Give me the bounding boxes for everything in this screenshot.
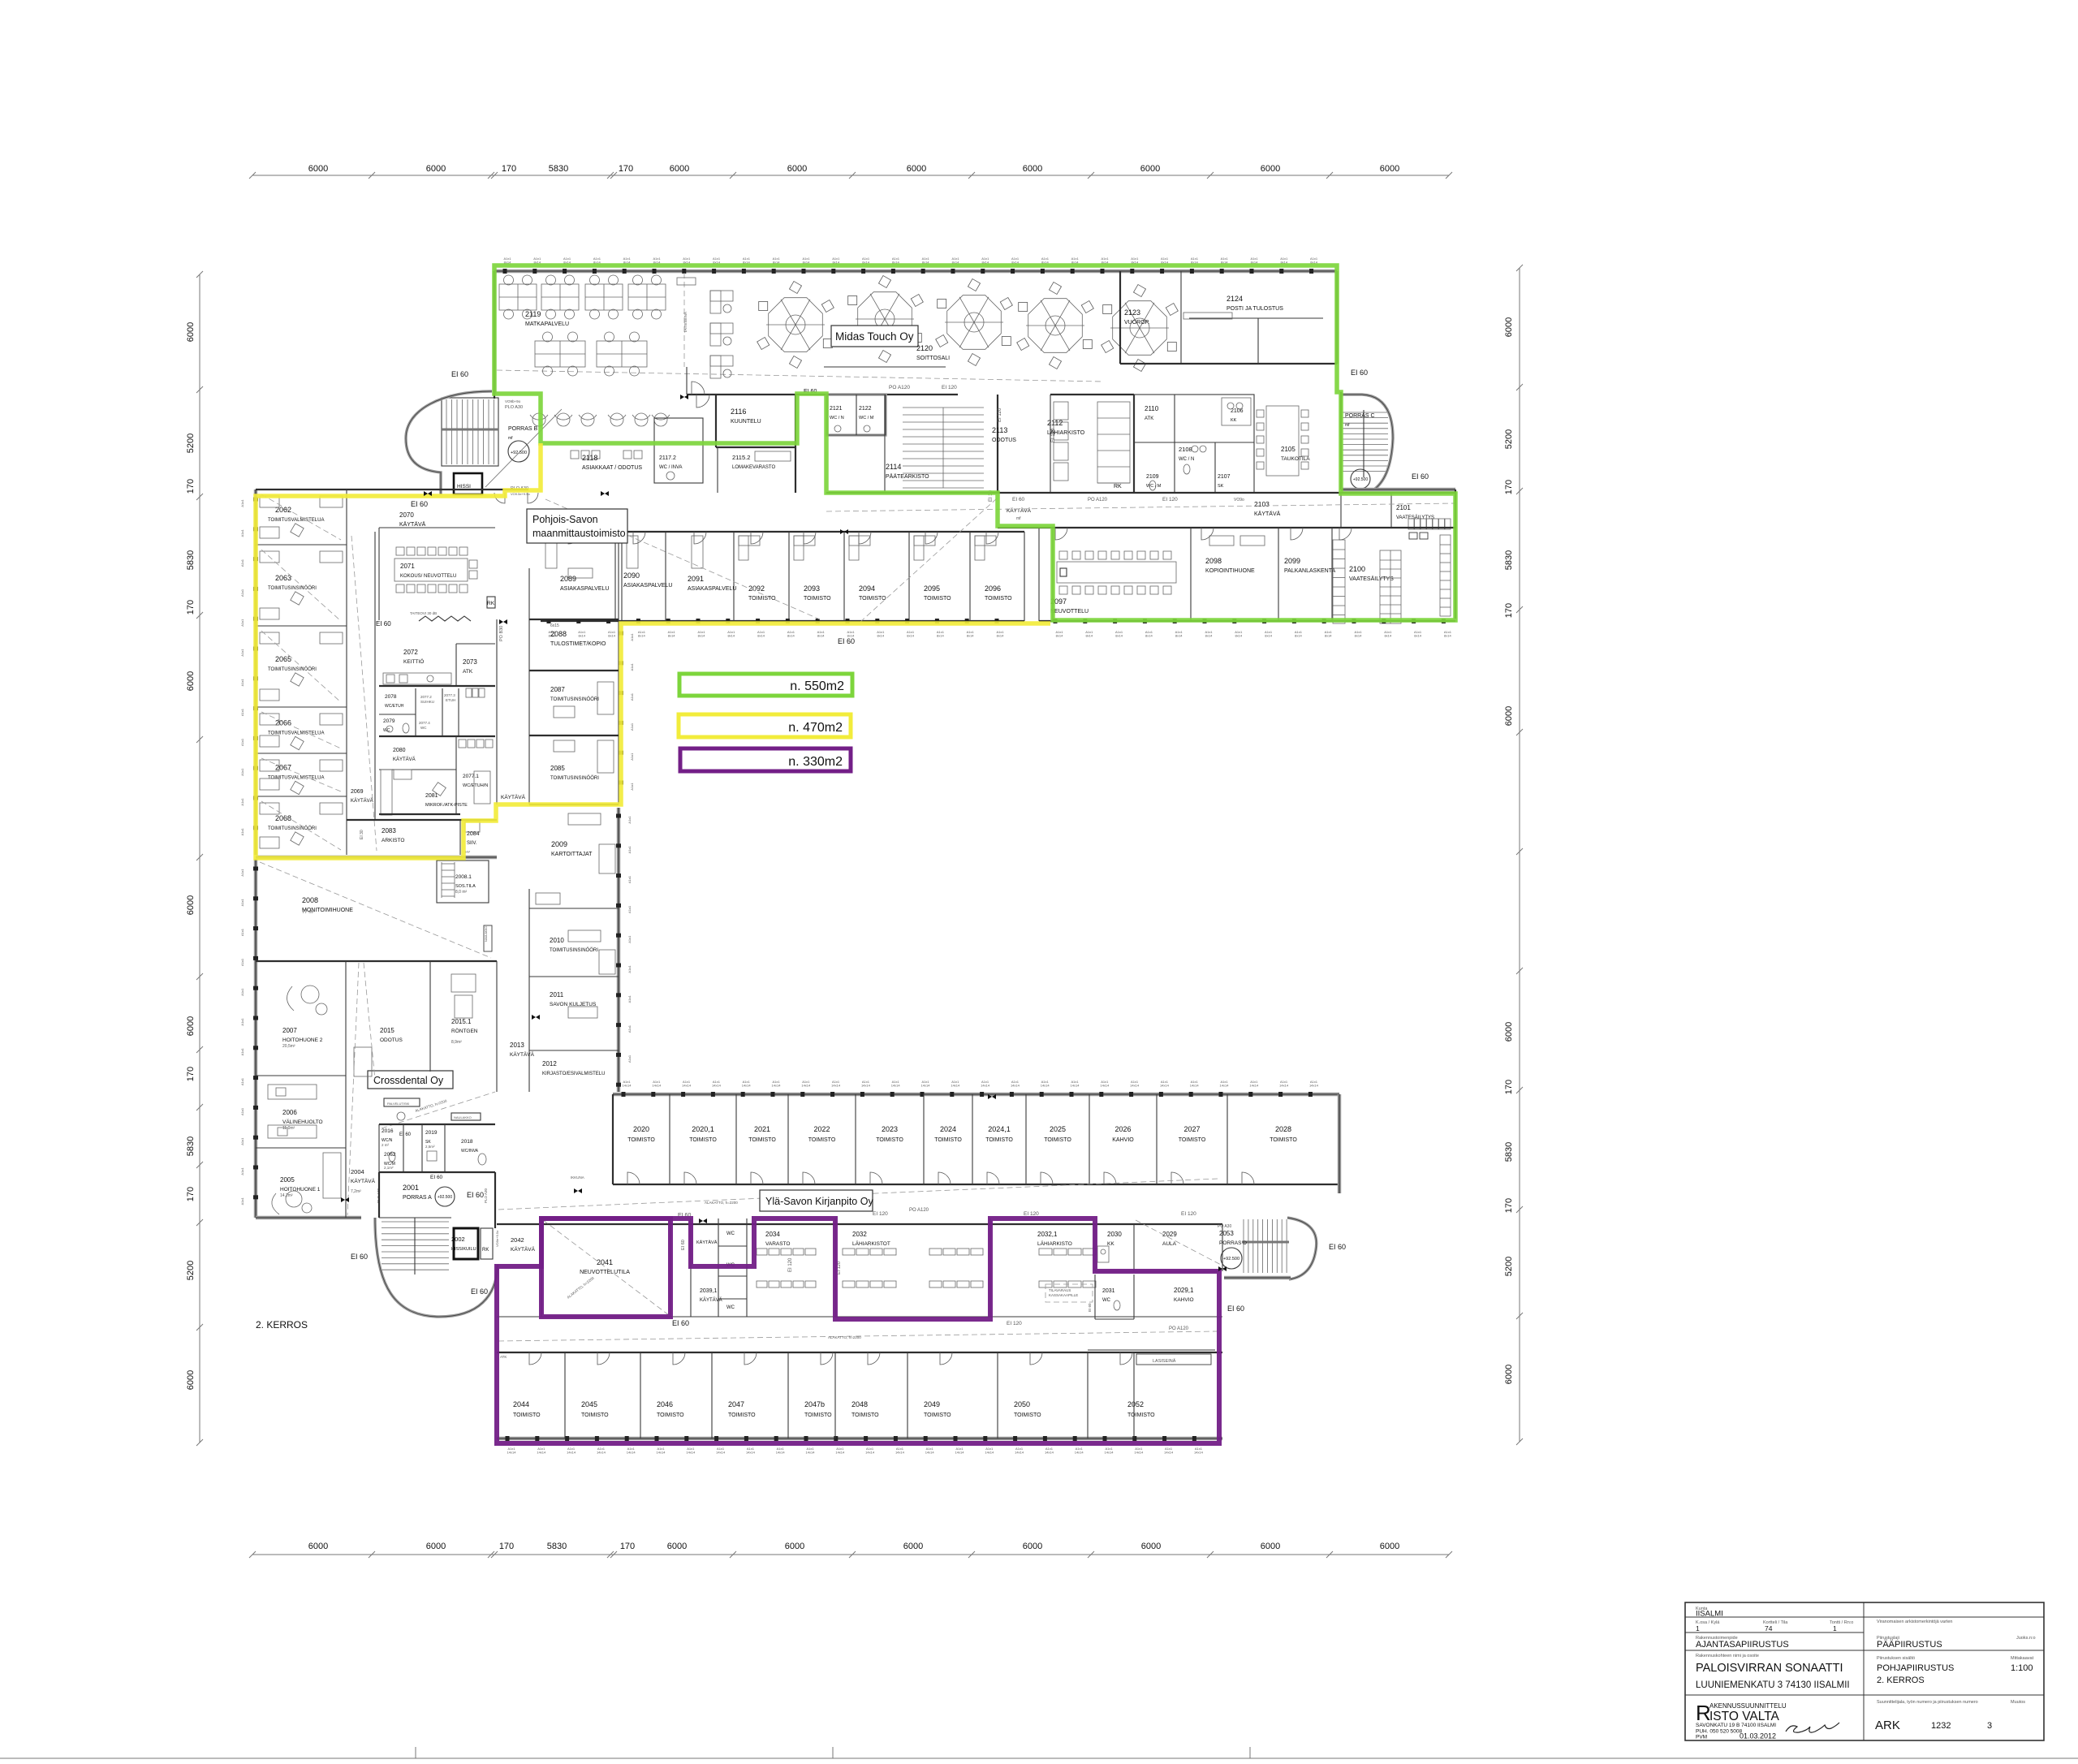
- svg-text:LASISEINÄ: LASISEINÄ: [1153, 1358, 1176, 1364]
- svg-text:EI 60: EI 60: [1012, 497, 1025, 502]
- svg-text:2026: 2026: [1114, 1125, 1131, 1133]
- svg-text:Rakennuskohteen nimi ja osoite: Rakennuskohteen nimi ja osoite: [1696, 1654, 1759, 1658]
- svg-text:2100: 2100: [1349, 565, 1365, 573]
- svg-text:KÄYTÄVÄ: KÄYTÄVÄ: [351, 1178, 376, 1184]
- svg-text:1: 1: [1696, 1624, 1700, 1632]
- svg-text:ISTO VALTA: ISTO VALTA: [1709, 1710, 1780, 1723]
- svg-text:PORRAS D: PORRAS D: [1219, 1240, 1247, 1246]
- svg-text:74: 74: [1765, 1624, 1773, 1632]
- svg-text:8x14: 8x14: [1295, 634, 1302, 638]
- svg-text:2029,1: 2029,1: [1174, 1287, 1194, 1294]
- svg-text:A1x1: A1x1: [240, 528, 244, 537]
- svg-text:6000: 6000: [903, 1542, 923, 1551]
- svg-text:14x14: 14x14: [652, 1084, 662, 1088]
- svg-text:Mittakaavat: Mittakaavat: [2011, 1656, 2034, 1661]
- svg-text:A1x1: A1x1: [627, 816, 632, 824]
- svg-text:14x14: 14x14: [772, 1084, 782, 1088]
- svg-text:SIIV.: SIIV.: [467, 841, 477, 846]
- svg-text:A1x1: A1x1: [240, 559, 244, 567]
- svg-text:14x14: 14x14: [1160, 1084, 1170, 1088]
- svg-text:2032,1: 2032,1: [1037, 1231, 1058, 1238]
- svg-text:EI 120: EI 120: [1024, 1211, 1039, 1217]
- svg-text:WC/ETUH: WC/ETUH: [385, 704, 404, 709]
- svg-text:2095: 2095: [924, 584, 940, 593]
- svg-text:TOIMITUSINSINÖÖRI: TOIMITUSINSINÖÖRI: [550, 947, 598, 953]
- svg-text:TOIMISTO: TOIMISTO: [804, 596, 831, 602]
- svg-text:2021: 2021: [754, 1125, 770, 1133]
- svg-text:8x14: 8x14: [997, 634, 1004, 638]
- svg-text:77 m²: 77 m²: [302, 910, 314, 915]
- svg-text:EI 60: EI 60: [399, 1132, 412, 1137]
- svg-text:6000: 6000: [1504, 1022, 1514, 1042]
- svg-text:WC: WC: [1102, 1298, 1111, 1303]
- svg-text:5830: 5830: [186, 550, 196, 570]
- svg-text:EI 60: EI 60: [838, 637, 855, 645]
- svg-text:2065: 2065: [275, 655, 291, 663]
- svg-text:A1x1: A1x1: [240, 708, 244, 716]
- svg-text:A1x1: A1x1: [240, 869, 244, 877]
- svg-text:2053: 2053: [1219, 1230, 1234, 1237]
- svg-text:A1x1: A1x1: [240, 768, 244, 776]
- svg-text:6000: 6000: [1504, 1365, 1514, 1384]
- svg-text:EI 120: EI 120: [1181, 1211, 1196, 1217]
- svg-text:IISALMI: IISALMI: [1696, 1610, 1723, 1619]
- svg-text:2019: 2019: [425, 1130, 438, 1136]
- svg-text:PVM: PVM: [1696, 1735, 1707, 1740]
- svg-text:PO A120: PO A120: [909, 1208, 929, 1213]
- svg-text:14x14: 14x14: [1249, 1084, 1259, 1088]
- svg-text:8x14: 8x14: [1205, 634, 1213, 638]
- svg-text:2062: 2062: [384, 1152, 396, 1158]
- svg-text:IKKUNA: IKKUNA: [571, 1175, 584, 1180]
- svg-text:ETUH: ETUH: [446, 698, 455, 702]
- svg-text:A1x1: A1x1: [627, 994, 632, 1003]
- svg-text:6000: 6000: [186, 895, 196, 915]
- svg-text:TOIMISTO: TOIMISTO: [804, 1412, 832, 1418]
- svg-text:14x14: 14x14: [861, 1084, 871, 1088]
- svg-text:8x14: 8x14: [1265, 634, 1272, 638]
- svg-text:14x14: 14x14: [627, 1451, 636, 1455]
- svg-text:6000: 6000: [670, 164, 689, 174]
- svg-text:WC / N: WC / N: [830, 416, 844, 421]
- svg-text:6000: 6000: [787, 164, 807, 174]
- svg-text:ODOTUS: ODOTUS: [992, 438, 1016, 443]
- svg-text:ARKISTO: ARKISTO: [382, 838, 404, 843]
- svg-text:2029: 2029: [1162, 1231, 1177, 1238]
- svg-text:8,0 m²: 8,0 m²: [455, 890, 468, 895]
- svg-text:14x14: 14x14: [1190, 1084, 1200, 1088]
- svg-text:Crossdental Oy: Crossdental Oy: [373, 1075, 444, 1086]
- svg-text:6000: 6000: [1023, 1542, 1042, 1551]
- svg-text:14x14: 14x14: [746, 1451, 756, 1455]
- svg-text:ASIAKASPALVELU: ASIAKASPALVELU: [560, 586, 609, 592]
- svg-text:8x14: 8x14: [1056, 634, 1063, 638]
- svg-text:TOIMISTO: TOIMISTO: [934, 1137, 962, 1143]
- svg-text:20,5m²: 20,5m²: [282, 1044, 295, 1049]
- svg-text:A1x1: A1x1: [627, 1055, 632, 1063]
- svg-text:14x14: 14x14: [1041, 1084, 1050, 1088]
- svg-text:5200: 5200: [186, 433, 196, 453]
- svg-text:PO A30: PO A30: [1218, 1224, 1231, 1229]
- svg-text:2088: 2088: [550, 630, 567, 638]
- svg-text:2009: 2009: [551, 840, 567, 848]
- svg-text:170: 170: [186, 600, 196, 615]
- svg-text:2079: 2079: [383, 718, 395, 724]
- svg-text:2011: 2011: [550, 991, 564, 998]
- svg-text:6000: 6000: [667, 1542, 687, 1551]
- svg-text:14x14: 14x14: [801, 1084, 811, 1088]
- svg-text:A1x1: A1x1: [240, 1197, 244, 1205]
- svg-text:WC: WC: [726, 1305, 735, 1310]
- svg-text:KAHVIO: KAHVIO: [1112, 1137, 1134, 1143]
- svg-text:PLO A30: PLO A30: [505, 405, 523, 410]
- svg-text:TOIMISTO: TOIMISTO: [657, 1412, 684, 1418]
- svg-text:A1x1: A1x1: [240, 1107, 244, 1115]
- svg-text:AKENNUSSUUNNITTELU: AKENNUSSUUNNITTELU: [1709, 1702, 1787, 1710]
- svg-text:14x14: 14x14: [951, 1084, 960, 1088]
- svg-text:NAULAKKO: NAULAKKO: [454, 1115, 472, 1119]
- svg-text:SOITTOSALI: SOITTOSALI: [916, 356, 950, 361]
- svg-text:TOIMISTO: TOIMISTO: [748, 596, 776, 602]
- svg-text:14x14: 14x14: [597, 1451, 606, 1455]
- svg-text:2006: 2006: [282, 1109, 297, 1116]
- svg-text:A1x1: A1x1: [240, 649, 244, 657]
- svg-text:A1x1: A1x1: [240, 1047, 244, 1055]
- svg-text:1:100: 1:100: [2011, 1663, 2033, 1673]
- svg-text:TOIMISTO: TOIMISTO: [748, 1137, 776, 1143]
- svg-text:PALVELUTISKI: PALVELUTISKI: [387, 1102, 409, 1106]
- svg-text:TAITEOVI 30 dB: TAITEOVI 30 dB: [410, 611, 437, 615]
- svg-text:A1x1: A1x1: [630, 662, 634, 671]
- svg-text:TOIMISTO: TOIMISTO: [1044, 1137, 1071, 1143]
- svg-text:VAATESÄILYTYS: VAATESÄILYTYS: [1396, 515, 1434, 520]
- svg-text:2077.2: 2077.2: [420, 695, 432, 699]
- svg-text:TOIMISTO: TOIMISTO: [689, 1137, 717, 1143]
- svg-text:14x14: 14x14: [686, 1451, 696, 1455]
- svg-text:2066: 2066: [275, 719, 291, 727]
- svg-text:EI 60: EI 60: [1227, 1305, 1244, 1313]
- svg-text:2093: 2093: [804, 584, 820, 593]
- svg-text:KÄYTÄVÄ: KÄYTÄVÄ: [351, 798, 373, 804]
- svg-text:6000: 6000: [1261, 1542, 1280, 1551]
- svg-text:2045: 2045: [581, 1400, 597, 1408]
- svg-text:5830: 5830: [1504, 550, 1514, 570]
- svg-text:14x14: 14x14: [1164, 1451, 1174, 1455]
- svg-text:2120: 2120: [916, 344, 933, 352]
- svg-text:14x14: 14x14: [1015, 1451, 1024, 1455]
- svg-text:2007: 2007: [282, 1027, 297, 1034]
- svg-text:2012: 2012: [542, 1060, 557, 1067]
- svg-text:A1x1: A1x1: [240, 1137, 244, 1145]
- svg-text:14x14: 14x14: [1075, 1451, 1084, 1455]
- svg-text:8x14: 8x14: [698, 634, 705, 638]
- svg-text:2025: 2025: [1050, 1125, 1066, 1133]
- svg-text:14x14: 14x14: [507, 1451, 517, 1455]
- svg-text:2092: 2092: [748, 584, 765, 593]
- svg-text:3: 3: [1987, 1721, 1992, 1731]
- svg-text:WC/INVA: WC/INVA: [461, 1149, 479, 1154]
- svg-text:2109: 2109: [1146, 474, 1159, 480]
- svg-text:TOIMISTO: TOIMISTO: [808, 1137, 836, 1143]
- svg-text:Viranomaisen arkistomerkintöjä: Viranomaisen arkistomerkintöjä varten: [1877, 1620, 1952, 1624]
- svg-text:A1x1: A1x1: [240, 678, 244, 686]
- svg-text:TULOSTIMET/KOPIO: TULOSTIMET/KOPIO: [550, 641, 606, 647]
- svg-text:Piirustuksen sisältö: Piirustuksen sisältö: [1877, 1656, 1915, 1661]
- svg-text:EI 120: EI 120: [873, 1211, 888, 1217]
- svg-text:14x14: 14x14: [1105, 1451, 1114, 1455]
- svg-text:KÄYTÄVÄ: KÄYTÄVÄ: [696, 1240, 718, 1245]
- svg-text:EI 60: EI 60: [1351, 369, 1368, 377]
- svg-text:RK: RK: [1114, 484, 1122, 490]
- svg-text:6000: 6000: [186, 1016, 196, 1036]
- svg-text:KASSAKAAPILLE: KASSAKAAPILLE: [1049, 1293, 1078, 1297]
- svg-text:HOITOHUONE 1: HOITOHUONE 1: [280, 1187, 321, 1193]
- svg-text:2087: 2087: [550, 686, 565, 693]
- svg-text:8x14: 8x14: [967, 634, 974, 638]
- svg-text:14x14: 14x14: [895, 1451, 905, 1455]
- svg-text:PALOISVIRRAN SONAATTI: PALOISVIRRAN SONAATTI: [1696, 1662, 1843, 1675]
- svg-text:KÄYTÄVÄ: KÄYTÄVÄ: [700, 1297, 722, 1303]
- svg-text:KOPIOINTIHUONE: KOPIOINTIHUONE: [1205, 568, 1255, 574]
- svg-text:A1x1: A1x1: [627, 875, 632, 883]
- svg-text:2078: 2078: [385, 694, 397, 700]
- svg-text:14x14: 14x14: [1134, 1451, 1144, 1455]
- svg-text:WC / M: WC / M: [859, 416, 874, 421]
- svg-text:LOMAKEVARASTO: LOMAKEVARASTO: [732, 465, 775, 470]
- svg-text:WC / M: WC / M: [1146, 484, 1162, 489]
- svg-text:A1x1: A1x1: [627, 905, 632, 913]
- svg-text:2101: 2101: [1396, 504, 1411, 511]
- svg-text:mf: mf: [508, 436, 513, 441]
- svg-text:2027: 2027: [1183, 1125, 1200, 1133]
- svg-text:R: R: [1696, 1701, 1711, 1725]
- svg-text:Muutos: Muutos: [2011, 1700, 2025, 1705]
- svg-text:14x14: 14x14: [981, 1084, 990, 1088]
- svg-text:TOIMISTO: TOIMISTO: [513, 1412, 541, 1418]
- svg-text:TOIMISTO: TOIMISTO: [728, 1412, 756, 1418]
- svg-text:NEUVOTTELUTILA: NEUVOTTELUTILA: [580, 1270, 630, 1275]
- svg-text:2119: 2119: [525, 310, 541, 318]
- svg-text:PORRAS A: PORRAS A: [403, 1195, 432, 1201]
- svg-text:VARASTO: VARASTO: [765, 1241, 790, 1247]
- svg-text:6000: 6000: [186, 671, 196, 691]
- svg-text:2077.3: 2077.3: [444, 693, 455, 697]
- svg-text:6000: 6000: [186, 322, 196, 342]
- svg-text:TOIMISTO: TOIMISTO: [985, 596, 1012, 602]
- svg-text:170: 170: [619, 164, 633, 174]
- svg-text:2124: 2124: [1227, 295, 1243, 303]
- svg-text:14x14: 14x14: [682, 1084, 692, 1088]
- svg-text:TAITESEINÄ: TAITESEINÄ: [683, 312, 688, 333]
- svg-text:6000: 6000: [426, 164, 446, 174]
- svg-text:TAUKOTILA: TAUKOTILA: [1281, 456, 1310, 462]
- svg-text:8x14: 8x14: [1115, 634, 1123, 638]
- svg-text:KIRJASTO/ESIVALMISTELU: KIRJASTO/ESIVALMISTELU: [542, 1072, 605, 1076]
- svg-text:HOITOHUONE 2: HOITOHUONE 2: [282, 1037, 323, 1043]
- svg-text:KUUNTELU: KUUNTELU: [731, 419, 761, 425]
- svg-text:WC / INVA: WC / INVA: [659, 465, 683, 470]
- svg-text:2. KERROS: 2. KERROS: [1877, 1676, 1925, 1685]
- svg-text:EI 120: EI 120: [1007, 1321, 1022, 1326]
- svg-text:2099: 2099: [1284, 557, 1300, 565]
- svg-text:11,0m²: 11,0m²: [282, 1126, 295, 1131]
- svg-text:POSTI JA TULOSTUS: POSTI JA TULOSTUS: [1227, 306, 1283, 312]
- svg-text:2002: 2002: [451, 1236, 465, 1243]
- svg-text:POHJAPIIRUSTUS: POHJAPIIRUSTUS: [1877, 1663, 1954, 1673]
- svg-text:A1x1: A1x1: [240, 958, 244, 966]
- svg-text:A1x1: A1x1: [240, 988, 244, 996]
- svg-text:2106: 2106: [1231, 408, 1244, 414]
- svg-text:2. KERROS: 2. KERROS: [256, 1319, 308, 1331]
- svg-text:8x14: 8x14: [608, 634, 615, 638]
- svg-text:AULA: AULA: [1162, 1241, 1177, 1247]
- svg-text:RK: RK: [482, 1248, 489, 1253]
- svg-text:VO9o: VO9o: [1234, 498, 1244, 502]
- svg-text:6000: 6000: [1504, 317, 1514, 337]
- svg-text:TOIMISTO: TOIMISTO: [876, 1137, 903, 1143]
- svg-text:2024,1: 2024,1: [988, 1125, 1011, 1133]
- svg-text:2024: 2024: [940, 1125, 956, 1133]
- svg-text:n. 470m2: n. 470m2: [788, 721, 843, 735]
- svg-text:2122: 2122: [859, 406, 872, 412]
- svg-text:TOIMISTO: TOIMISTO: [1179, 1137, 1206, 1143]
- svg-text:WC: WC: [726, 1231, 735, 1236]
- svg-text:14x14: 14x14: [742, 1084, 752, 1088]
- svg-text:5200: 5200: [186, 1261, 196, 1280]
- svg-text:170: 170: [1504, 1080, 1514, 1094]
- svg-text:170: 170: [499, 1542, 514, 1551]
- svg-text:TOIMISTO: TOIMISTO: [627, 1137, 655, 1143]
- svg-text:TOIMITUSVALMISTELUA: TOIMITUSVALMISTELUA: [268, 776, 324, 781]
- svg-text:PLO A30: PLO A30: [484, 1188, 488, 1203]
- svg-text:170: 170: [186, 1187, 196, 1201]
- svg-text:2069: 2069: [351, 789, 364, 795]
- svg-text:A1x1: A1x1: [240, 1077, 244, 1085]
- svg-text:8x14: 8x14: [877, 634, 884, 638]
- svg-text:A1x1: A1x1: [240, 1018, 244, 1026]
- svg-text:6000: 6000: [1504, 706, 1514, 726]
- svg-text:2063: 2063: [275, 574, 291, 582]
- svg-text:EI 120: EI 120: [1162, 497, 1178, 502]
- svg-text:VUOROP.: VUOROP.: [1124, 320, 1149, 326]
- svg-text:PO A120: PO A120: [1169, 1326, 1189, 1331]
- svg-text:KÄYTÄVÄ: KÄYTÄVÄ: [1254, 511, 1281, 517]
- svg-text:WC: WC: [420, 726, 427, 730]
- svg-text:6000: 6000: [785, 1542, 804, 1551]
- svg-text:PÄÄTEARKISTO: PÄÄTEARKISTO: [886, 473, 929, 480]
- svg-text:2113: 2113: [992, 426, 1007, 434]
- svg-text:A1x1: A1x1: [630, 722, 634, 731]
- svg-text:6000: 6000: [426, 1542, 446, 1551]
- svg-text:+92.500: +92.500: [1223, 1257, 1239, 1262]
- svg-text:8x14: 8x14: [907, 634, 914, 638]
- svg-text:LUUNIEMENKATU 3 74130 IISAL: LUUNIEMENKATU 3 74130 IISALMII: [1696, 1680, 1850, 1690]
- svg-text:2116: 2116: [731, 408, 746, 416]
- svg-text:PO A120: PO A120: [1088, 498, 1108, 502]
- svg-text:EI 60: EI 60: [1329, 1243, 1346, 1251]
- svg-text:KÄYTÄVÄ: KÄYTÄVÄ: [399, 521, 426, 528]
- svg-text:14x14: 14x14: [1100, 1084, 1110, 1088]
- svg-text:A1x1: A1x1: [240, 619, 244, 627]
- svg-text:14x14: 14x14: [1045, 1451, 1054, 1455]
- svg-text:SOS.TILA: SOS.TILA: [455, 884, 476, 889]
- svg-text:6000: 6000: [1023, 164, 1042, 174]
- svg-text:AJANTASAPIIRUSTUS: AJANTASAPIIRUSTUS: [1696, 1640, 1789, 1650]
- svg-text:2020: 2020: [633, 1125, 649, 1133]
- svg-text:14x14: 14x14: [716, 1451, 726, 1455]
- svg-text:6000: 6000: [1261, 164, 1280, 174]
- svg-text:01.03.2012: 01.03.2012: [1740, 1732, 1776, 1740]
- svg-text:PO A120: PO A120: [889, 385, 910, 390]
- svg-text:TOIMITUSINSINÖÖRI: TOIMITUSINSINÖÖRI: [550, 775, 599, 781]
- svg-text:2,5m²: 2,5m²: [425, 1145, 435, 1149]
- svg-text:14x14: 14x14: [1194, 1451, 1204, 1455]
- svg-text:A1x1: A1x1: [240, 738, 244, 746]
- svg-text:6000: 6000: [308, 164, 328, 174]
- svg-text:8x14: 8x14: [937, 634, 944, 638]
- svg-text:2015: 2015: [380, 1027, 394, 1034]
- svg-text:8x14: 8x14: [1444, 634, 1451, 638]
- svg-text:TOIMISTO: TOIMISTO: [1014, 1412, 1041, 1418]
- svg-text:14x14: 14x14: [1279, 1084, 1289, 1088]
- svg-text:2034: 2034: [765, 1231, 780, 1238]
- svg-text:SK: SK: [1218, 484, 1224, 489]
- svg-text:WC / N: WC / N: [1179, 457, 1194, 462]
- svg-text:6000: 6000: [186, 1370, 196, 1390]
- svg-text:ASIAKKAAT / ODOTUS: ASIAKKAAT / ODOTUS: [582, 465, 642, 471]
- svg-text:2028: 2028: [1275, 1125, 1291, 1133]
- svg-text:2103: 2103: [1254, 500, 1270, 508]
- svg-text:14x14: 14x14: [712, 1084, 722, 1088]
- svg-text:A1x1: A1x1: [630, 783, 634, 791]
- svg-text:LÄHIARKISTO: LÄHIARKISTO: [1037, 1240, 1072, 1247]
- svg-text:TOIMISTO: TOIMISTO: [851, 1412, 879, 1418]
- svg-text:5200: 5200: [1504, 429, 1514, 449]
- svg-text:2023: 2023: [882, 1125, 898, 1133]
- svg-text:A1x1: A1x1: [240, 589, 244, 597]
- svg-text:8,9m²: 8,9m²: [451, 1040, 462, 1045]
- svg-text:A1x1: A1x1: [630, 633, 634, 641]
- svg-text:14x14: 14x14: [537, 1451, 546, 1455]
- svg-text:2015.1: 2015.1: [451, 1018, 472, 1025]
- svg-text:VAATESÄILYTYS: VAATESÄILYTYS: [1349, 576, 1394, 582]
- svg-text:5830: 5830: [186, 1136, 196, 1156]
- svg-text:EI 60: EI 60: [467, 1191, 484, 1199]
- svg-text:2072: 2072: [403, 649, 418, 656]
- svg-text:2 m²: 2 m²: [382, 1143, 390, 1147]
- svg-text:EI 60: EI 60: [471, 1287, 488, 1296]
- svg-text:Juoks.n:o: Juoks.n:o: [2016, 1636, 2036, 1641]
- svg-text:8x14: 8x14: [668, 634, 675, 638]
- svg-text:EI 60: EI 60: [376, 620, 391, 628]
- svg-text:14x14: 14x14: [806, 1451, 816, 1455]
- svg-text:Suunnittelijala, työn numero j: Suunnittelijala, työn numero ja piirustu…: [1877, 1700, 1978, 1705]
- svg-text:TOIMISTO: TOIMISTO: [1127, 1412, 1155, 1418]
- svg-text:2096: 2096: [985, 584, 1001, 593]
- svg-text:8x14: 8x14: [1355, 634, 1362, 638]
- svg-text:2115.2: 2115.2: [732, 454, 750, 461]
- svg-text:EI 60: EI 60: [351, 1253, 368, 1261]
- svg-text:KÄYTÄVÄ: KÄYTÄVÄ: [393, 757, 416, 762]
- svg-text:170: 170: [1504, 1198, 1514, 1213]
- svg-text:+92.500: +92.500: [438, 1195, 452, 1200]
- svg-text:1: 1: [1833, 1624, 1837, 1632]
- svg-text:A1x1: A1x1: [240, 499, 244, 507]
- svg-text:EI 60: EI 60: [1088, 1303, 1092, 1312]
- svg-text:Ylä-Savon Kirjanpito Oy: Ylä-Savon Kirjanpito Oy: [765, 1196, 873, 1207]
- svg-text:2091: 2091: [688, 575, 704, 583]
- svg-text:WC/ETUH/N: WC/ETUH/N: [463, 783, 488, 788]
